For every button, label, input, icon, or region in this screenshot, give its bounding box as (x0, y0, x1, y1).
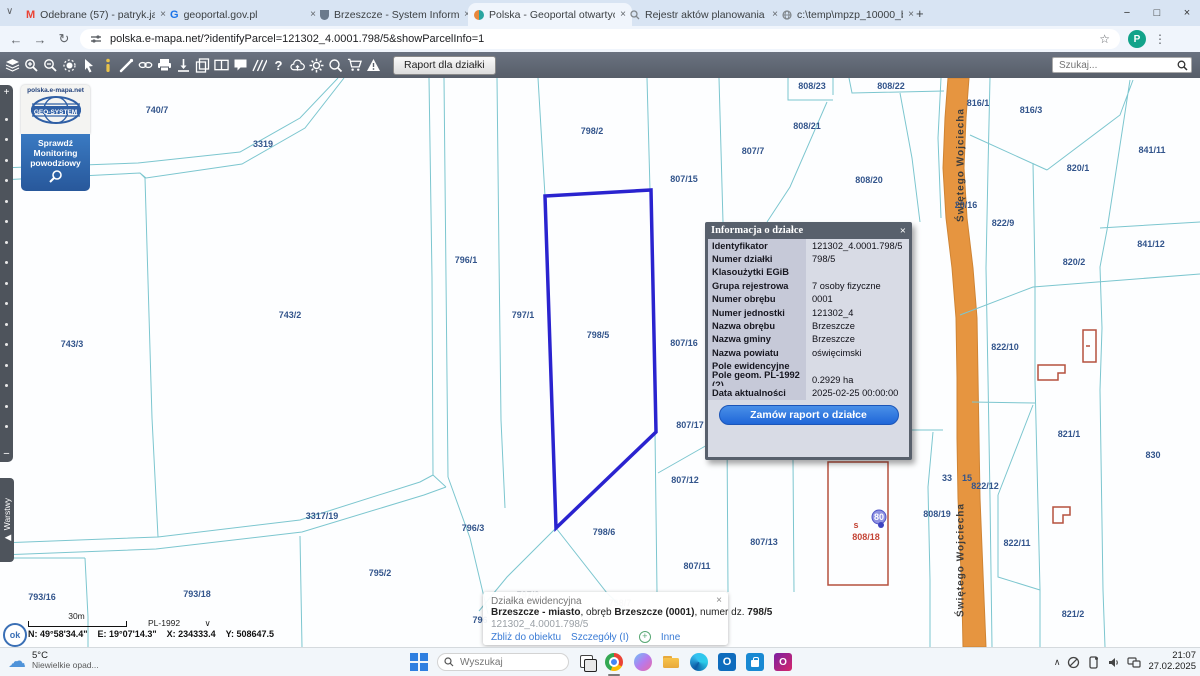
parcel-label: 821/2 (1062, 609, 1085, 619)
parcel-label: 33 (942, 473, 952, 483)
row-label: Numer działki (708, 252, 806, 265)
parcel-label: 808/19 (923, 509, 951, 519)
tray-chevron-icon[interactable]: ∧ (1054, 657, 1061, 668)
edge-icon[interactable] (690, 653, 708, 671)
windows-taskbar: ☁ 5°C Niewielkie opad... O O ∧ 21:07 (0, 647, 1200, 676)
parcel-label: 807/12 (671, 475, 699, 485)
tab-label: Polska - Geoportal otwartych d (489, 9, 615, 21)
parcel-label: 830 (1145, 450, 1160, 460)
parcel-label: 793/18 (183, 589, 211, 599)
building-outline (1083, 330, 1096, 362)
parcel-label: Świętego Wojciecha (956, 108, 967, 222)
building-outline (1038, 365, 1065, 380)
row-label: Pole geom. PL-1992 (?) (708, 373, 806, 386)
layers-icon[interactable] (5, 57, 20, 73)
zoom-in-plus-icon[interactable]: + (4, 85, 10, 100)
tab-polska-active[interactable]: Polska - Geoportal otwartych d × (468, 3, 632, 26)
feature-popup-close-icon[interactable]: × (716, 595, 722, 606)
tab-close-icon[interactable]: × (908, 9, 914, 20)
parcel-label: 798/5 (587, 330, 610, 340)
coord-y: Y: 508647.5 (226, 629, 274, 639)
start-button[interactable] (410, 653, 428, 671)
parcel-boundaries (0, 78, 1200, 647)
app-icon-q[interactable]: O (774, 653, 792, 671)
parcel-info-row: Klasoużytki EGiB (708, 266, 909, 279)
tab-geoportal[interactable]: G geoportal.gov.pl × (164, 3, 322, 26)
layers-tab-arrow-icon: ▶ (2, 530, 12, 542)
zoom-slider-track[interactable] (5, 100, 8, 446)
row-label: Nazwa gminy (708, 333, 806, 346)
address-bar: ← → ↻ polska.e-mapa.net/?identifyParcel=… (0, 26, 1200, 52)
crs-label: PL-1992 (148, 618, 180, 628)
weather-cloud-icon: ☁ (8, 652, 26, 670)
crs-dropdown-chevron-icon[interactable]: ∨ (205, 618, 211, 628)
magnifier-plus-icon[interactable] (328, 57, 343, 73)
warning-icon[interactable] (366, 57, 381, 73)
parcel-label: 743/3 (61, 339, 84, 349)
parcel-label: 820/1 (1067, 163, 1090, 173)
tab-label: c:\temp\mpzp_10000_bardzo_d (797, 9, 903, 21)
window-close-button[interactable]: × (1172, 0, 1200, 26)
scale-label: 30m (28, 611, 125, 621)
coord-x: X: 234333.4 (167, 629, 216, 639)
row-value: 0.2929 ha (806, 375, 853, 385)
window-minimize-button[interactable]: − (1112, 0, 1142, 26)
monitoring-magnifier-icon (48, 170, 64, 184)
parcel-info-row: Nazwa obrębu Brzeszcze (708, 319, 909, 332)
parcel-info-row: Nazwa powiatu oświęcimski (708, 346, 909, 359)
pointer-icon[interactable] (81, 57, 96, 73)
clock-date: 27.02.2025 (1148, 662, 1196, 673)
parcel-label: 822/11 (1003, 538, 1030, 548)
task-view-button[interactable] (578, 653, 596, 671)
parcel-label: 796/3 (462, 523, 485, 533)
row-label: Nazwa obrębu (708, 319, 806, 332)
scale-bar (28, 621, 127, 627)
layers-panel-tab[interactable]: ▶ Warstwy (0, 478, 14, 562)
parcel-info-row: Numer działki 798/5 (708, 252, 909, 265)
other-link[interactable]: Inne (661, 632, 680, 643)
ok-logo-badge[interactable]: ok (3, 623, 27, 647)
row-value: 121302_4.0001.798/5 (806, 241, 902, 251)
file-explorer-icon[interactable] (662, 653, 680, 671)
copy-map-icon[interactable] (195, 57, 210, 73)
order-parcel-report-button[interactable]: Zamów raport o działce (719, 405, 899, 425)
parcel-info-row: Numer obrębu 0001 (708, 293, 909, 306)
tray-phone-link-icon[interactable] (1087, 656, 1100, 669)
selected-parcel-outline (545, 190, 656, 528)
parcel-label: Świętego Wojciecha (956, 503, 967, 617)
geoportal-icon: G (170, 9, 179, 21)
bookmark-star-icon[interactable]: ☆ (1099, 32, 1110, 46)
hatch-slope-icon[interactable] (252, 57, 267, 73)
site-settings-icon[interactable] (90, 33, 102, 45)
parcel-label: 743/2 (279, 310, 302, 320)
parcel-label: 820/2 (1063, 257, 1086, 267)
tab-file[interactable]: c:\temp\mpzp_10000_bardzo_d × (776, 3, 920, 26)
outlook-icon[interactable]: O (718, 653, 736, 671)
parcel-label: 807/11 (683, 561, 710, 571)
parcel-label: 822/10 (991, 342, 1019, 352)
tab-gmail[interactable]: M Odebrane (57) - patryk.jakubow × (20, 3, 172, 26)
rejestr-icon (630, 10, 640, 20)
flood-monitoring-button[interactable]: Sprawdź Monitoring powodziowy (21, 134, 90, 191)
row-label: Nazwa powiatu (708, 346, 806, 359)
cadastral-map-layer (0, 78, 1200, 647)
parcel-label: 816/1 (967, 98, 990, 108)
parcel-label: 841/11 (1138, 145, 1165, 155)
tray-dnd-icon[interactable] (1067, 656, 1080, 669)
parcel-info-titlebar[interactable]: Informacja o działce × (705, 222, 912, 239)
parcel-label: 807/17 (676, 420, 704, 430)
row-value: Brzeszcze (806, 321, 855, 331)
taskbar-weather-text: Niewielkie opad... (32, 661, 99, 670)
zoom-in-icon[interactable] (24, 57, 39, 73)
parcel-label: 798/6 (593, 527, 616, 537)
settings-icon[interactable] (309, 57, 324, 73)
row-value: 7 osoby fizyczne (806, 281, 881, 291)
help-icon[interactable]: ? (271, 57, 286, 73)
tab-label: Odebrane (57) - patryk.jakubow (40, 9, 155, 21)
row-label: Identyfikator (708, 239, 806, 252)
parcel-label: 808/18 (852, 532, 880, 542)
zoom-out-icon[interactable] (43, 57, 58, 73)
tab-label: Rejestr aktów planowania prze (645, 9, 767, 21)
tray-network-icon[interactable] (1127, 656, 1141, 669)
chrome-icon[interactable] (605, 653, 623, 671)
profile-avatar[interactable]: P (1128, 30, 1146, 48)
parcel-label: 3317/19 (306, 511, 339, 521)
map-search-icon[interactable] (1177, 60, 1188, 71)
parcel-label: 740/7 (146, 105, 169, 115)
parcel-info-row: Numer jednostki 121302_4 (708, 306, 909, 319)
taskbar-search-input[interactable] (437, 653, 569, 671)
row-value: 2025-02-25 00:00:00 (806, 388, 898, 398)
tab-rejestr[interactable]: Rejestr aktów planowania prze × (624, 3, 784, 26)
file-globe-icon (782, 10, 792, 20)
parcel-info-body: Identyfikator 121302_4.0001.798/5 Numer … (708, 239, 909, 457)
browser-tab-bar: ∨ M Odebrane (57) - patryk.jakubow × G g… (0, 0, 1200, 26)
taskbar-clock[interactable]: 21:07 27.02.2025 (1148, 651, 1196, 673)
url-field[interactable]: polska.e-mapa.net/?identifyParcel=121302… (80, 29, 1120, 49)
parcel-label: 15 (962, 473, 972, 483)
monitoring-line3: powodziowy (21, 159, 90, 169)
browser-menu-icon[interactable]: ⋮ (1154, 32, 1166, 46)
parcel-label: 3319 (253, 139, 273, 149)
coord-e: E: 19°07'14.3" (98, 629, 157, 639)
zoom-out-minus-icon[interactable]: − (3, 446, 9, 462)
comment-icon[interactable] (233, 57, 248, 73)
print-icon[interactable] (157, 57, 172, 73)
add-icon[interactable]: + (639, 631, 651, 643)
parcel-info-title: Informacja o działce (711, 225, 803, 236)
parcel-label: 793/16 (28, 592, 56, 602)
row-label: Data aktualności (708, 386, 806, 399)
logo-domain-text: polska.e-mapa.net (21, 85, 90, 94)
parcel-label: 80 (874, 512, 884, 522)
parcel-label: 807/15 (670, 174, 698, 184)
map-search-input[interactable] (1052, 57, 1192, 73)
feature-popup: Działka ewidencyjna × Brzeszcze - miasto… (483, 592, 728, 645)
parcel-label: 821/1 (1058, 429, 1081, 439)
brzeszcze-crest-icon (320, 10, 329, 20)
measure-icon[interactable] (119, 57, 134, 73)
parcel-label: 822/12 (971, 481, 999, 491)
coord-n: N: 49°58'34.4" (28, 629, 88, 639)
parcel-label: 808/22 (877, 81, 905, 91)
parcel-label: 808/23 (798, 81, 826, 91)
parcel-label: 797/1 (512, 310, 535, 320)
taskbar-search-icon (444, 657, 454, 667)
forward-icon[interactable]: → (28, 32, 52, 47)
feature-name: Brzeszcze - miasto, obręb Brzeszcze (000… (491, 607, 772, 618)
logo-brand-text: GEO-SYSTEM (21, 109, 90, 116)
gmail-icon: M (26, 9, 35, 21)
row-label: Klasoużytki EGiB (708, 266, 806, 279)
locate-icon[interactable] (176, 57, 191, 73)
parcel-label: 808/21 (793, 121, 821, 131)
parcel-label: 798/2 (581, 126, 604, 136)
parcel-label: 822/9 (992, 218, 1015, 228)
link-icon[interactable] (138, 57, 153, 73)
tab-brzeszcze[interactable]: Brzeszcze - System Informacji P × (314, 3, 476, 26)
row-value: Brzeszcze (806, 334, 855, 344)
tray-volume-icon[interactable] (1107, 656, 1120, 669)
details-link[interactable]: Szczegóły (I) (571, 632, 629, 643)
split-view-icon[interactable] (214, 57, 229, 73)
select-area-icon[interactable] (62, 57, 77, 73)
parcel-label: 808/20 (855, 175, 883, 185)
weather-widget[interactable]: ☁ 5°C Niewielkie opad... (8, 651, 99, 671)
polska-geoportal-icon (474, 10, 484, 20)
parcel-label: 816/3 (1020, 105, 1043, 115)
parcel-label: 807/16 (670, 338, 698, 348)
row-label: Numer jednostki (708, 306, 806, 319)
parcel-info-row: Grupa rejestrowa 7 osoby fizyczne (708, 279, 909, 292)
row-value: 121302_4 (806, 308, 853, 318)
store-icon[interactable] (746, 653, 764, 671)
cloud-upload-icon[interactable] (290, 57, 305, 73)
parcel-info-row: Data aktualności 2025-02-25 00:00:00 (708, 386, 909, 399)
building-outline (1053, 507, 1070, 523)
layers-tab-label: Warstwy (2, 498, 12, 530)
map-toolbar: ? Raport dla działki (0, 52, 1200, 78)
zoom-slider[interactable]: + − (0, 85, 13, 462)
parcel-label: 807/13 (750, 537, 778, 547)
info-icon[interactable] (100, 57, 115, 73)
new-tab-button[interactable]: + (916, 6, 924, 21)
row-label: Grupa rejestrowa (708, 279, 806, 292)
parcel-info-rows: Identyfikator 121302_4.0001.798/5 Numer … (708, 239, 909, 400)
parcel-info-row: Identyfikator 121302_4.0001.798/5 (708, 239, 909, 252)
popup-close-icon[interactable]: × (900, 225, 906, 237)
coordinates-readout: N: 49°58'34.4" E: 19°07'14.3" X: 234333.… (28, 629, 274, 639)
reload-icon[interactable]: ↻ (52, 31, 76, 47)
url-text: polska.e-mapa.net/?identifyParcel=121302… (110, 33, 484, 45)
geo-system-logo[interactable]: polska.e-mapa.net GEO-SYSTEM (21, 85, 90, 134)
tab-label: geoportal.gov.pl (184, 9, 306, 21)
map-canvas[interactable]: 740/73319798/2807/15807/7808/23808/22808… (0, 78, 1200, 647)
parcel-info-row: Pole geom. PL-1992 (?) 0.2929 ha (708, 373, 909, 386)
parcel-label: 841/12 (1137, 239, 1165, 249)
row-value: 0001 (806, 294, 833, 304)
parcel-info-row: Nazwa gminy Brzeszcze (708, 333, 909, 346)
tab-search-chevron-icon[interactable]: ∨ (6, 6, 13, 17)
feature-popup-title: Działka ewidencyjna (491, 596, 582, 607)
row-value: 798/5 (806, 254, 835, 264)
parcel-label: 795/2 (369, 568, 392, 578)
feature-id: 121302_4.0001.798/5 (491, 619, 588, 630)
window-maximize-button[interactable]: □ (1142, 0, 1172, 26)
tab-label: Brzeszcze - System Informacji P (334, 9, 459, 21)
crs-selector[interactable]: PL-1992 ∨ (148, 618, 211, 629)
copilot-icon[interactable] (634, 653, 652, 671)
parcel-label: s (853, 520, 858, 530)
parcel-label: 796/1 (455, 255, 478, 265)
zoom-to-object-link[interactable]: Zbliż do obiektu (491, 632, 561, 643)
row-value: oświęcimski (806, 348, 862, 358)
row-label: Numer obrębu (708, 293, 806, 306)
parcel-label: 807/7 (742, 146, 765, 156)
cart-icon[interactable] (347, 57, 362, 73)
back-icon[interactable]: ← (4, 32, 28, 47)
report-parcel-button[interactable]: Raport dla działki (393, 56, 496, 75)
parcel-info-popup: Informacja o działce × Identyfikator 121… (705, 222, 912, 460)
marker-dot (878, 522, 884, 528)
